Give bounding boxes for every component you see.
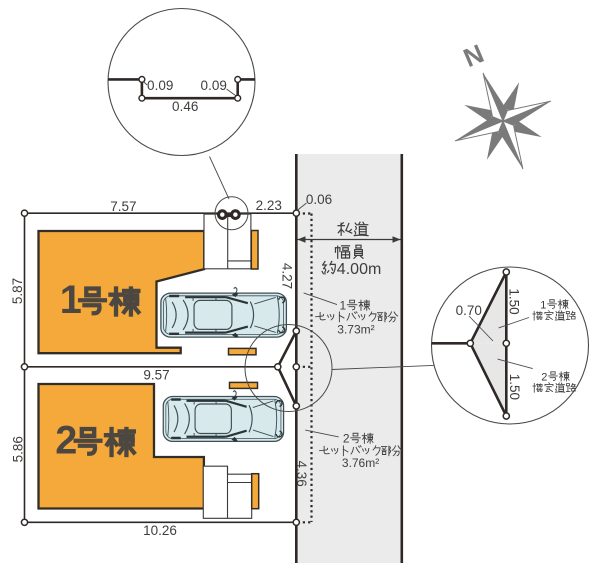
svg-text:9.57: 9.57 (143, 368, 169, 383)
svg-text:4.27: 4.27 (280, 263, 295, 289)
svg-text:5.86: 5.86 (11, 436, 26, 462)
svg-text:3.76m²: 3.76m² (342, 456, 379, 470)
svg-text:2: 2 (343, 432, 350, 446)
svg-text:10.26: 10.26 (143, 523, 177, 538)
svg-text:1: 1 (540, 299, 546, 311)
svg-text:7.57: 7.57 (110, 199, 136, 214)
svg-text:5.87: 5.87 (10, 278, 25, 304)
svg-text:0.09: 0.09 (201, 78, 227, 93)
svg-text:0.46: 0.46 (172, 99, 198, 114)
svg-text:0.70: 0.70 (456, 303, 482, 318)
svg-text:3.73m²: 3.73m² (337, 323, 374, 337)
svg-text:1.50: 1.50 (507, 374, 522, 400)
svg-text:2.23: 2.23 (256, 198, 282, 213)
svg-text:4.36: 4.36 (294, 460, 309, 486)
svg-text:1.50: 1.50 (507, 288, 522, 314)
svg-text:0.09: 0.09 (147, 78, 173, 93)
svg-text:4.00m: 4.00m (337, 261, 382, 278)
svg-text:0.06: 0.06 (306, 192, 332, 207)
svg-text:1: 1 (340, 299, 347, 313)
svg-text:2: 2 (541, 371, 547, 383)
